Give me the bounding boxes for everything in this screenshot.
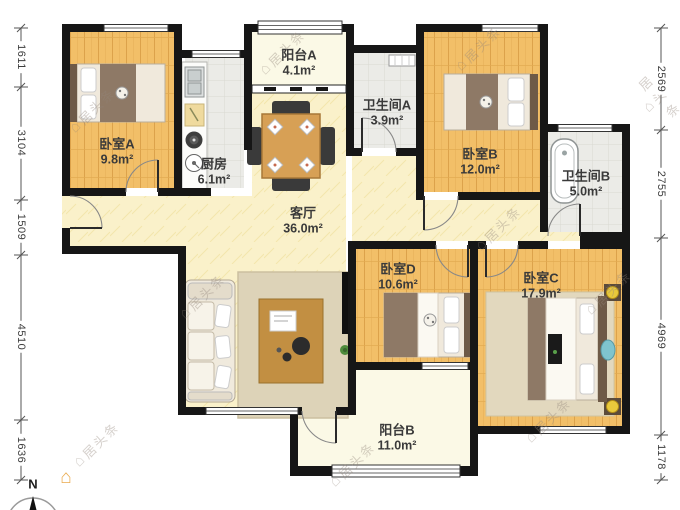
room-label-bedroom-c: 卧室C 17.9m² — [521, 270, 561, 301]
room-label-living: 客厅 36.0m² — [283, 205, 323, 236]
bedroom-c-tv — [548, 334, 562, 364]
bedroom-a-bed — [70, 64, 165, 122]
room-label-bedroom-d: 卧室D 10.6m² — [378, 261, 418, 292]
room-name: 卧室D — [378, 261, 418, 277]
dimension-right-3: 4969 — [655, 320, 667, 352]
room-area: 6.1m² — [198, 172, 231, 187]
room-area: 17.9m² — [521, 286, 561, 301]
room-name: 阳台B — [378, 422, 417, 438]
room-name: 卧室A — [99, 136, 134, 152]
dimension-right-1: 2569 — [655, 63, 667, 95]
bedroom-b-bed — [444, 74, 538, 130]
room-label-kitchen: 厨房 6.1m² — [198, 156, 231, 187]
room-label-bathroom-b: 卫生间B 5.0m² — [562, 168, 610, 199]
room-area: 36.0m² — [283, 221, 323, 236]
lamp-icon — [607, 401, 619, 413]
room-label-bedroom-a: 卧室A 9.8m² — [99, 136, 134, 167]
floor-plan-canvas: 卧室A 9.8m² 厨房 6.1m² 阳台A 4.1m² 卫生间A 3.9m² … — [0, 0, 680, 510]
lamp-icon — [607, 287, 619, 299]
dimension-left-3: 1509 — [15, 211, 27, 243]
coffee-table — [259, 299, 323, 383]
dimension-right-2: 2755 — [655, 168, 667, 200]
room-label-balcony-a: 阳台A 4.1m² — [281, 47, 316, 78]
room-name: 卫生间A — [363, 97, 411, 113]
room-label-balcony-b: 阳台B 11.0m² — [378, 422, 417, 453]
room-area: 12.0m² — [460, 162, 500, 177]
compass-north-label: N — [28, 477, 37, 492]
room-name: 卧室C — [521, 270, 561, 286]
sofa — [185, 280, 235, 402]
room-label-bathroom-a: 卫生间A 3.9m² — [363, 97, 411, 128]
room-area: 10.6m² — [378, 277, 418, 292]
dimension-left-4: 4510 — [15, 321, 27, 353]
floor-entrance — [70, 196, 186, 246]
brand-logo-icon: ⌂ — [60, 467, 71, 489]
dimension-right-4: 1178 — [655, 441, 667, 473]
floor-plan-drawing — [0, 0, 680, 510]
room-name: 阳台A — [281, 47, 316, 63]
dimension-left-5: 1636 — [15, 434, 27, 466]
floor-corridor — [416, 200, 540, 241]
room-label-bedroom-b: 卧室B 12.0m² — [460, 146, 500, 177]
dimension-left-2: 3104 — [15, 127, 27, 159]
room-name: 卧室B — [460, 146, 500, 162]
bedroom-d-bed — [384, 293, 472, 357]
room-name: 厨房 — [198, 156, 231, 172]
room-name: 卫生间B — [562, 168, 610, 184]
room-area: 3.9m² — [363, 113, 411, 128]
compass-icon — [7, 496, 59, 510]
bedroom-c-bed — [486, 284, 621, 416]
room-area: 9.8m² — [99, 152, 134, 167]
dimension-left-1: 1611 — [15, 41, 27, 73]
room-area: 5.0m² — [562, 184, 610, 199]
room-name: 客厅 — [283, 205, 323, 221]
room-area: 4.1m² — [281, 63, 316, 78]
bathroom-a-radiator — [389, 55, 415, 66]
room-area: 11.0m² — [378, 438, 417, 453]
